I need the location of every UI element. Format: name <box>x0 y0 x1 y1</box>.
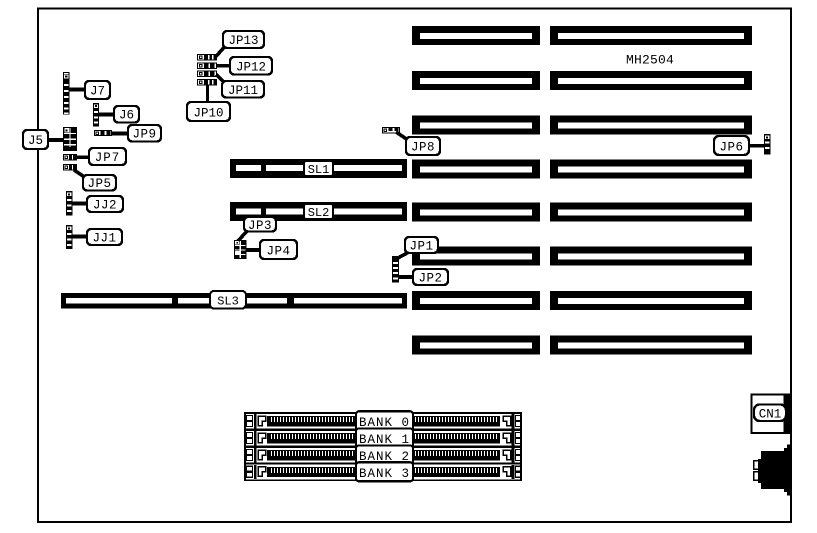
svg-text:JP6: JP6 <box>719 141 743 155</box>
svg-text:JP9: JP9 <box>132 128 156 142</box>
svg-text:JP11: JP11 <box>228 84 258 98</box>
svg-text:J5: J5 <box>28 134 43 148</box>
svg-text:JP12: JP12 <box>236 61 266 75</box>
svg-text:JP5: JP5 <box>87 177 111 191</box>
svg-text:JP2: JP2 <box>418 272 442 286</box>
svg-text:J7: J7 <box>90 85 105 99</box>
svg-text:SL3: SL3 <box>217 295 239 309</box>
svg-text:BANK 3: BANK 3 <box>359 467 410 481</box>
svg-text:JP3: JP3 <box>248 219 272 233</box>
svg-text:CN1: CN1 <box>759 408 782 422</box>
svg-text:JP13: JP13 <box>228 34 258 48</box>
svg-text:JJ1: JJ1 <box>92 232 116 246</box>
svg-text:SL2: SL2 <box>308 206 330 220</box>
svg-text:JP8: JP8 <box>411 141 435 155</box>
svg-text:JP10: JP10 <box>193 107 223 121</box>
svg-text:JJ2: JJ2 <box>93 199 117 213</box>
svg-text:JP4: JP4 <box>266 245 290 259</box>
svg-text:J6: J6 <box>119 109 134 123</box>
svg-text:JP1: JP1 <box>409 240 433 254</box>
svg-text:JP7: JP7 <box>95 151 121 165</box>
svg-text:MH2504: MH2504 <box>626 53 674 68</box>
svg-text:SL1: SL1 <box>308 163 330 177</box>
